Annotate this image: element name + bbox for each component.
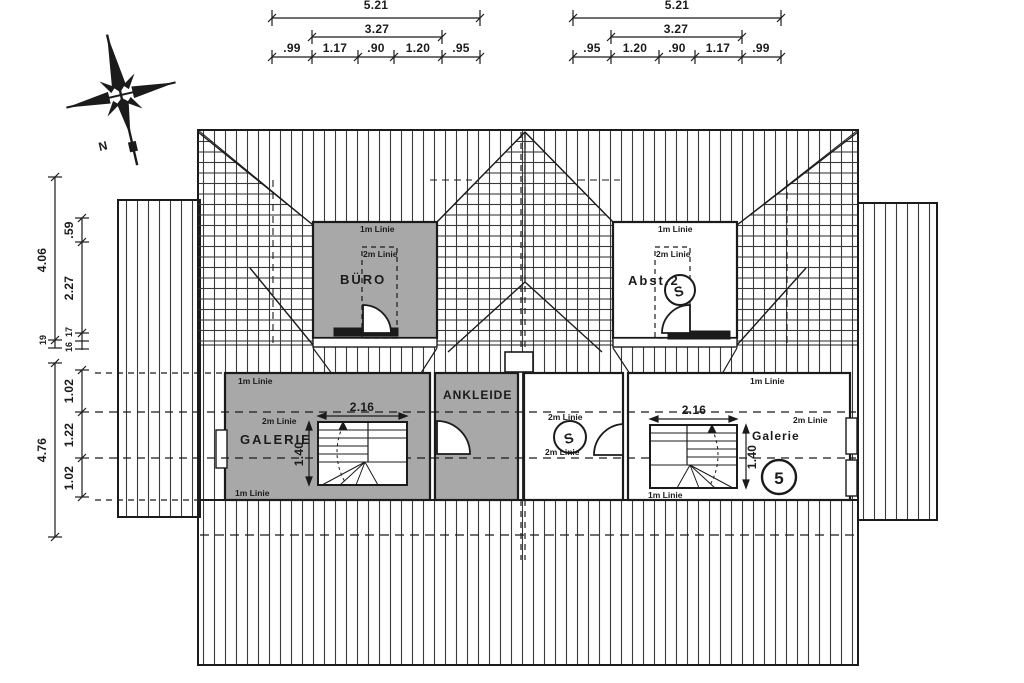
dim-stair-width-right: 2.16 (682, 403, 707, 417)
dim-inner-right: 3.27 (664, 22, 689, 36)
guide-1m-abst2: 1m Linie (658, 224, 693, 234)
left-wing-roof (118, 200, 200, 517)
stair-left (318, 422, 407, 485)
compass-rose (52, 22, 191, 178)
guide-1m-right-bottom: 1m Linie (648, 490, 683, 500)
dim-seg: .99 (752, 41, 770, 55)
dim-seg: .99 (283, 41, 301, 55)
room-label-buero: BÜRO (340, 272, 386, 287)
stair-right (650, 425, 737, 488)
dim-seg: .95 (452, 41, 470, 55)
chimney (505, 352, 533, 372)
attic-floor-plan-drawing: 5.21 5.21 3.27 3.27 .99 1.17 .90 1.20 .9… (0, 0, 1024, 683)
room-label-galerie-right: Galerie (752, 429, 800, 443)
dim-seg: 1.20 (623, 41, 648, 55)
dim-seg: .90 (367, 41, 385, 55)
dim-seg: 1.02 (62, 379, 76, 404)
dim-inner-left: 3.27 (365, 22, 390, 36)
guide-2m-hall-lower: 2m Linie (545, 447, 580, 457)
dim-seg: .90 (668, 41, 686, 55)
dim-left-17: 17 (64, 327, 74, 337)
floor-plan-sheet: 5.21 5.21 3.27 3.27 .99 1.17 .90 1.20 .9… (0, 0, 1024, 683)
dim-total-right: 5.21 (665, 0, 690, 12)
dim-seg: .95 (583, 41, 601, 55)
dim-total-left: 5.21 (364, 0, 389, 12)
guide-1m-right-top: 1m Linie (750, 376, 785, 386)
guide-2m-hall-upper: 2m Linie (548, 412, 583, 422)
dimension-chain-left-upper (48, 173, 89, 350)
window-left-wall (216, 430, 227, 468)
dim-left-16: 16 (64, 342, 74, 352)
right-wing-roof (858, 203, 937, 520)
dim-seg: 1.17 (323, 41, 348, 55)
dim-left-total-upper: 4.06 (35, 248, 49, 273)
guide-1m-galerie-top: 1m Linie (238, 376, 273, 386)
guide-1m-galerie-bottom: 1m Linie (235, 488, 270, 498)
guide-2m-galerie: 2m Linie (262, 416, 297, 426)
compass-north-label: N (97, 138, 109, 154)
dim-seg: 1.22 (62, 423, 76, 448)
dim-seg: 1.17 (706, 41, 731, 55)
skylight-number-right: 5 (774, 469, 783, 488)
dimension-chain-top-left (268, 10, 484, 64)
room-label-ankleide: ANKLEIDE (443, 388, 512, 402)
guide-2m-buero: 2m Linie (363, 249, 398, 259)
room-hall-right-unit (524, 373, 623, 500)
dim-stair-depth-left: 1.40 (292, 442, 306, 467)
dim-seg: 1.20 (406, 41, 431, 55)
dim-left-total-lower: 4.76 (35, 438, 49, 463)
window-right-wall-lower (846, 460, 857, 496)
dimension-chain-top-right (569, 10, 785, 64)
dim-seg: 1.02 (62, 466, 76, 491)
guide-2m-abst2: 2m Linie (656, 249, 691, 259)
dim-stair-depth-right: 1.40 (745, 445, 759, 470)
dim-left-19: 19 (38, 335, 48, 345)
window-right-wall-upper (846, 418, 857, 454)
main-roof-lower (198, 500, 858, 665)
guide-2m-right: 2m Linie (793, 415, 828, 425)
dim-stair-width-left: 2.16 (350, 400, 375, 414)
guide-1m-buero: 1m Linie (360, 224, 395, 234)
dim-left-59: .59 (62, 221, 76, 239)
dim-left-227: 2.27 (62, 276, 76, 301)
